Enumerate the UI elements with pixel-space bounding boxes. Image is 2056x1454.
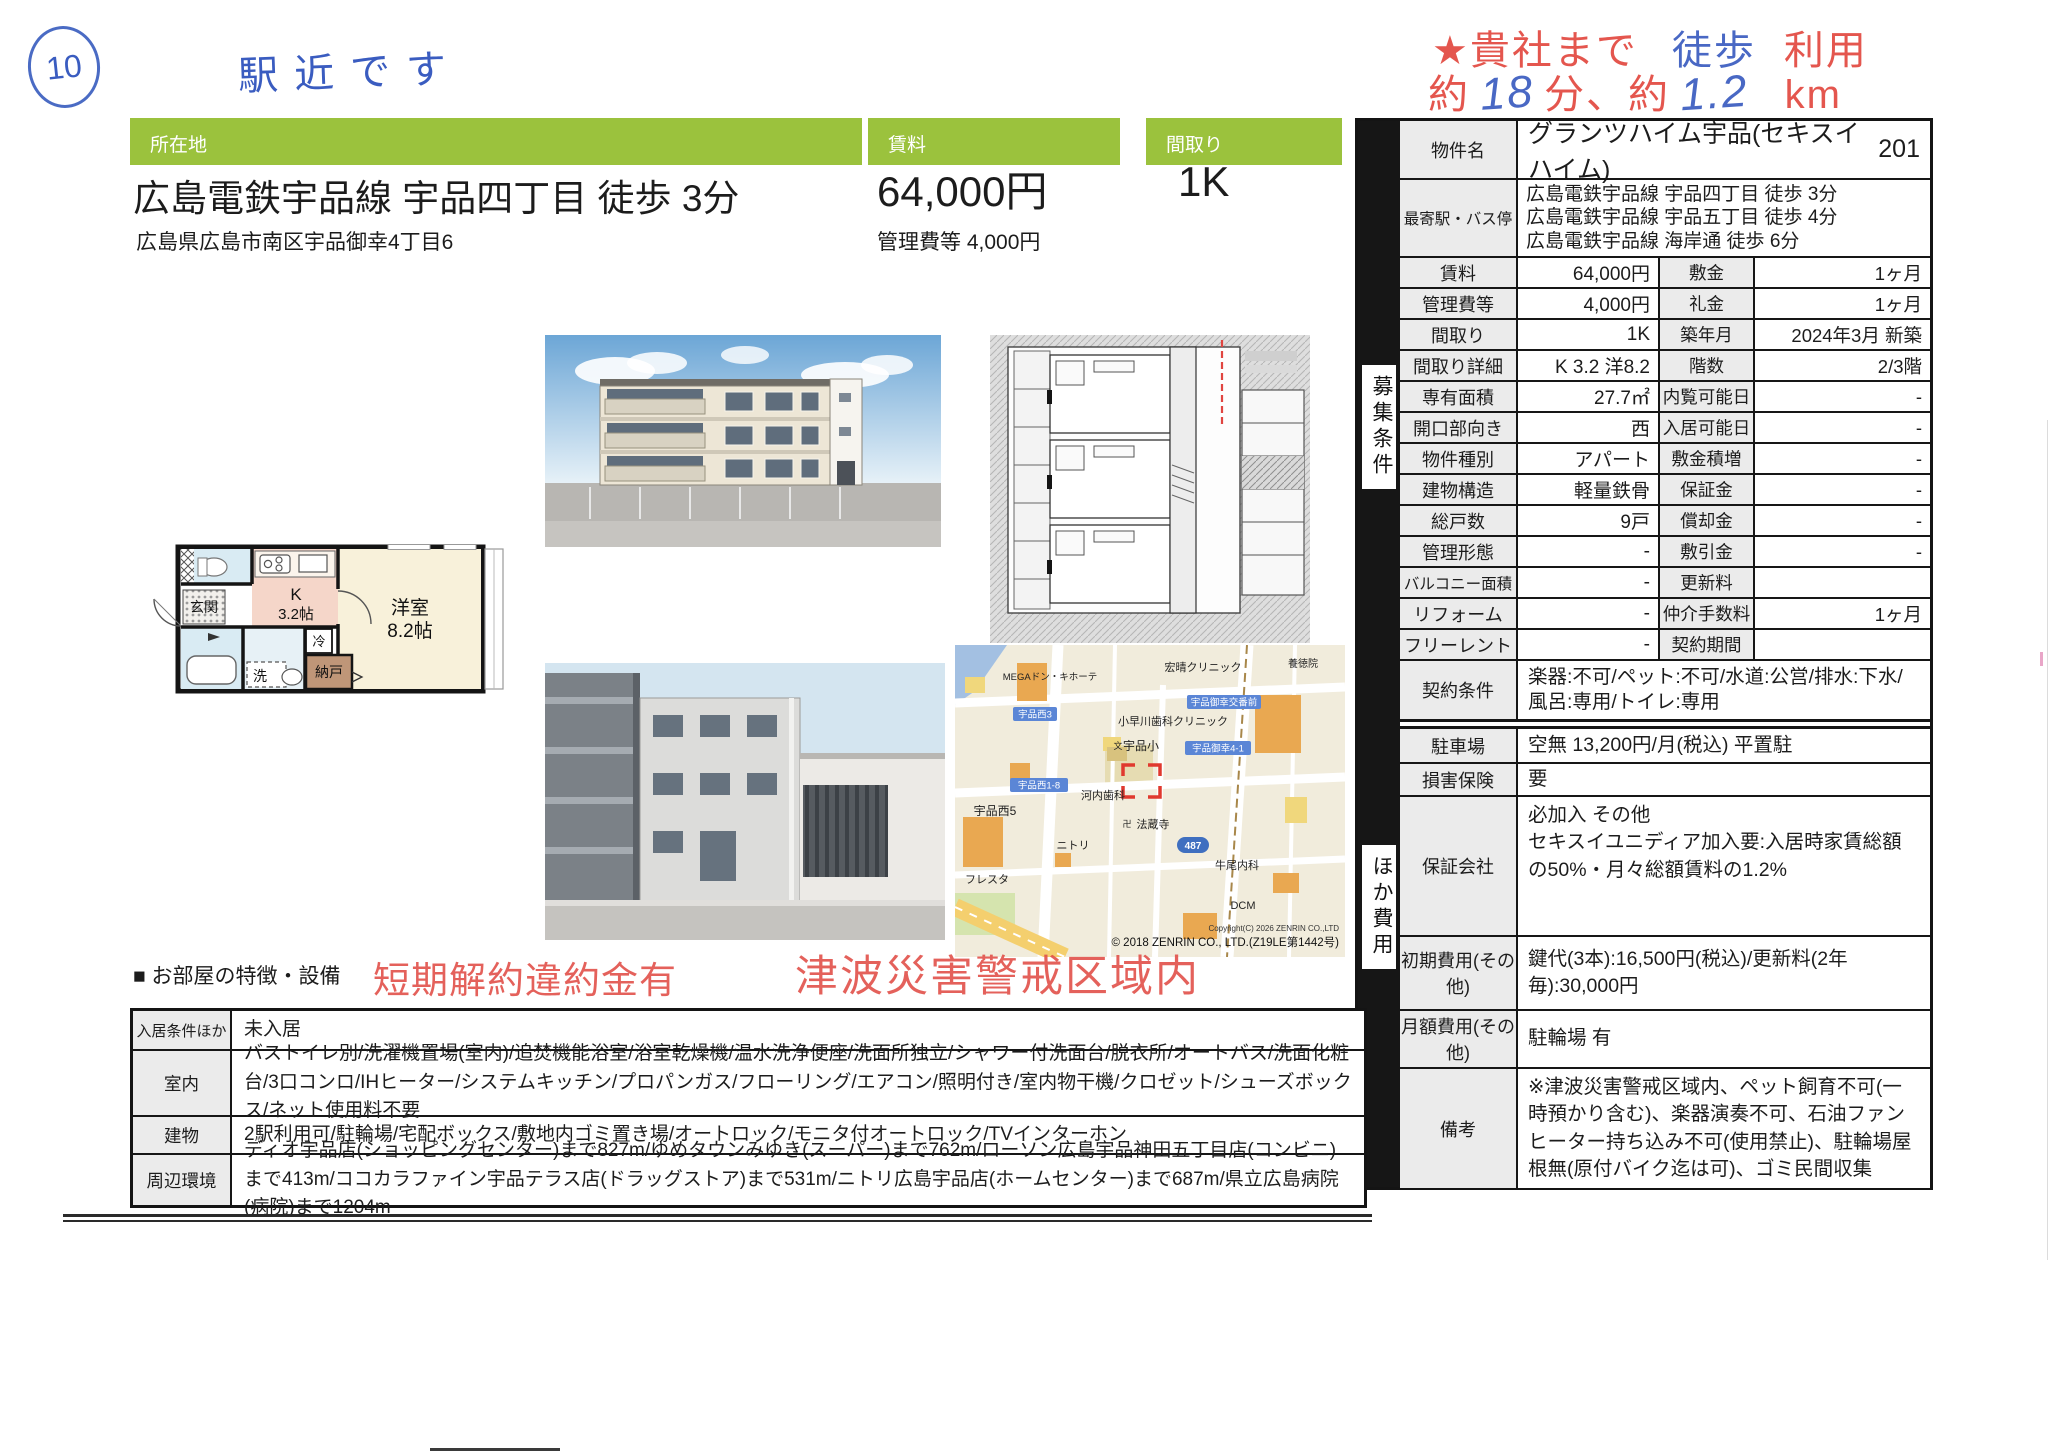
table-row: リフォーム - 仲介手数料 1ヶ月: [1400, 597, 1930, 628]
spec-value: 2/3階: [1753, 351, 1930, 380]
fee-label: 初期費用(その他): [1400, 937, 1516, 1009]
property-name-cell: グランツハイム宇品(セキスイハイム) 201: [1516, 121, 1930, 178]
table-row: 管理形態 - 敷引金 -: [1400, 535, 1930, 566]
building-exterior-photo: [545, 335, 941, 547]
spec-label: 間取り詳細: [1400, 351, 1516, 380]
fee-value: ※津波災害警戒区域内、ペット飼育不可(一時預かり含む)、楽器演奏不可、石油ファン…: [1516, 1069, 1930, 1188]
feature-label: 周辺環境: [133, 1155, 230, 1205]
spec-value: 9戸: [1516, 506, 1658, 535]
spec-value: -: [1753, 506, 1930, 535]
handwritten-note: 駅近です: [237, 36, 463, 102]
fee-label: 備考: [1400, 1069, 1516, 1188]
property-address: 広島県広島市南区宇品御幸4丁目6: [136, 226, 453, 256]
spec-value: K 3.2 洋8.2: [1516, 351, 1658, 380]
floorplan-fridge-label: 冷: [312, 634, 325, 649]
fee-value: 必加入 その他 セキスイユニディア加入要:入居時家賃総額の50%・月々総額賃料の…: [1516, 797, 1930, 935]
spec-label: 礼金: [1658, 289, 1753, 318]
circle-number-text: 10: [44, 47, 83, 88]
management-fee: 管理費等 4,000円: [877, 226, 1040, 256]
layout-type: 1K: [1178, 158, 1229, 206]
spec-value: -: [1753, 475, 1930, 504]
features-section-title: ■ お部屋の特徴・設備: [133, 960, 341, 990]
table-row-notes: 備考 ※津波災害警戒区域内、ペット飼育不可(一時預かり含む)、楽器演奏不可、石油…: [1400, 1067, 1930, 1188]
table-row: 開口部向き 西 入居可能日 -: [1400, 411, 1930, 442]
map-copyright-small: Copyright(C) 2026 ZENRIN CO.,LTD: [1208, 924, 1339, 933]
table-row-parking: 駐車場 空無 13,200円/月(税込) 平置駐: [1400, 729, 1930, 762]
spec-label: 管理形態: [1400, 537, 1516, 566]
map-poi: 河内歯科: [1081, 788, 1125, 802]
spec-label: 総戸数: [1400, 506, 1516, 535]
table-row-guarantee: 保証会社 必加入 その他 セキスイユニディア加入要:入居時家賃総額の50%・月々…: [1400, 795, 1930, 935]
fee-label: 損害保険: [1400, 764, 1516, 795]
agent-distance-stamp-line2: 約18分、約1.2km: [1428, 62, 1842, 120]
spec-value: 1ヶ月: [1753, 289, 1930, 318]
spec-value: 4,000円: [1516, 289, 1658, 318]
table-row: 間取り 1K 築年月 2024年3月 新築: [1400, 318, 1930, 349]
fee-label: 保証会社: [1400, 797, 1516, 935]
map-poi: 宏晴クリニック: [1165, 660, 1242, 674]
spec-value: -: [1516, 630, 1658, 659]
station-access-title: 広島電鉄宇品線 宇品四丁目 徒歩 3分: [133, 168, 739, 222]
contract-conditions: 楽器:不可/ペット:不可/水道:公営/排水:下水/風呂:専用/トイレ:専用: [1516, 661, 1930, 719]
spec-value: 軽量鉄骨: [1516, 475, 1658, 504]
fee-label: 駐車場: [1400, 729, 1516, 762]
map-pill: 宇品西3: [1018, 709, 1052, 721]
floorplan-drawing: 玄関 K 3.2帖 洋室 8.2帖 冷 洗 納戸: [148, 534, 540, 752]
spec-label: 階数: [1658, 351, 1753, 380]
spec-value: -: [1516, 537, 1658, 566]
spec-value: -: [1753, 413, 1930, 442]
spec-label: 物件種別: [1400, 444, 1516, 473]
map-poi: 牛尾内科: [1215, 858, 1259, 872]
building-entrance-photo: [545, 663, 945, 940]
fee-value: 要: [1516, 764, 1930, 795]
spec-label: 入居可能日: [1658, 413, 1753, 442]
spec-value: 1ヶ月: [1753, 599, 1930, 628]
floorplan-room-label: 洋室: [391, 597, 429, 619]
floorplan-svg: 玄関 K 3.2帖 洋室 8.2帖 冷 洗 納戸: [148, 534, 540, 752]
map-poi: 養徳院: [1288, 657, 1318, 670]
spec-value: [1753, 630, 1930, 659]
spec-label: バルコニー面積: [1400, 568, 1516, 597]
floorplan-genkan-label: 玄関: [190, 599, 218, 615]
station-list: 広島電鉄宇品線 宇品四丁目 徒歩 3分 広島電鉄宇品線 宇品五丁目 徒歩 4分 …: [1516, 180, 1930, 256]
map-poi: 小早川歯科クリニック: [1118, 714, 1228, 728]
spec-label: 敷金積増: [1658, 444, 1753, 473]
map-poi: 宇品西5: [974, 804, 1017, 818]
section-divider: [1400, 719, 1930, 729]
floorplan-kitchen-size: 3.2帖: [278, 606, 314, 623]
spec-value: -: [1516, 599, 1658, 628]
stamp-text: 約: [1428, 73, 1470, 117]
floorplan-kitchen-label: K: [290, 585, 302, 604]
spec-value: -: [1753, 382, 1930, 411]
entrance-photo-svg: [545, 663, 945, 940]
spec-label: フリーレント: [1400, 630, 1516, 659]
room-features-table: 入居条件ほか 未入居 室内 バストイレ別/洗濯機置場(室内)/追焚機能浴室/浴室…: [130, 1008, 1367, 1208]
table-row-initial-costs: 初期費用(その他) 鍵代(3本):16,500円(税込)/更新料(2年毎):30…: [1400, 935, 1930, 1009]
fee-value: 鍵代(3本):16,500円(税込)/更新料(2年毎):30,000円: [1516, 937, 1930, 1009]
feature-label: 室内: [133, 1051, 230, 1115]
spec-value: [1753, 568, 1930, 597]
fee-label: 月額費用(その他): [1400, 1011, 1516, 1067]
spec-value: -: [1753, 537, 1930, 566]
spec-label: 償却金: [1658, 506, 1753, 535]
floorplan-storage-label: 納戸: [315, 664, 343, 680]
spec-label: 物件名: [1400, 121, 1516, 178]
spec-label: 更新料: [1658, 568, 1753, 597]
spec-value: 64,000円: [1516, 258, 1658, 287]
spec-label: 賃料: [1400, 258, 1516, 287]
spec-label: 契約条件: [1400, 661, 1516, 719]
map-poi: MEGAドン・キホーテ: [1003, 672, 1097, 683]
table-row: 賃料 64,000円 敷金 1ヶ月: [1400, 256, 1930, 287]
table-row-insurance: 損害保険 要: [1400, 762, 1930, 795]
property-spec-table: 募集条件 ほか費用 物件名 グランツハイム宇品(セキスイハイム) 201 最寄駅…: [1355, 118, 1933, 1190]
map-pill: 宇品西1-8: [1018, 780, 1060, 792]
property-flyer-sheet: 10 駅近です ★貴社まで徒歩利用 約18分、約1.2km 所在地 賃料 間取り…: [0, 0, 2056, 1454]
spec-label: 敷金: [1658, 258, 1753, 287]
table-row: 物件種別 アパート 敷金積増 -: [1400, 442, 1930, 473]
map-poi: 宇品小: [1123, 739, 1159, 753]
rent-amount: 64,000円: [877, 158, 1047, 219]
spec-value: 2024年3月 新築: [1753, 320, 1930, 349]
spec-label: 専有面積: [1400, 382, 1516, 411]
property-name: グランツハイム宇品(セキスイハイム): [1528, 114, 1878, 186]
table-row-monthly-costs: 月額費用(その他) 駐輪場 有: [1400, 1009, 1930, 1067]
bottom-double-rule: [63, 1214, 1372, 1222]
map-pill: 宇品御幸4-1: [1192, 743, 1244, 755]
feature-label: 建物: [133, 1117, 230, 1153]
school-symbol-icon: 文: [1113, 740, 1122, 751]
spec-label: 間取り: [1400, 320, 1516, 349]
table-row: 間取り詳細 K 3.2 洋8.2 階数 2/3階: [1400, 349, 1930, 380]
stamp-text: 分、約: [1544, 73, 1670, 117]
station-line: 広島電鉄宇品線 宇品五丁目 徒歩 4分: [1526, 206, 1930, 229]
table-row: 建物構造 軽量鉄骨 保証金 -: [1400, 473, 1930, 504]
station-line: 広島電鉄宇品線 宇品四丁目 徒歩 3分: [1526, 183, 1930, 206]
spec-value: 西: [1516, 413, 1658, 442]
map-poi: フレスタ: [965, 873, 1009, 886]
map-poi: 法蔵寺: [1137, 817, 1170, 831]
table-row-interior: 室内 バストイレ別/洗濯機置場(室内)/追焚機能浴室/浴室乾燥機/温水洗浄便座/…: [133, 1049, 1364, 1115]
rail-label-recruit-conditions: 募集条件: [1362, 365, 1396, 489]
spec-value: 1K: [1516, 320, 1658, 349]
table-row: 専有面積 27.7㎡ 内覧可能日 -: [1400, 380, 1930, 411]
table-row: フリーレント - 契約期間: [1400, 628, 1930, 659]
scan-artifact: [2040, 652, 2043, 666]
table-row-contract: 契約条件 楽器:不可/ペット:不可/水道:公営/排水:下水/風呂:専用/トイレ:…: [1400, 659, 1930, 719]
spec-label: 内覧可能日: [1658, 382, 1753, 411]
spec-label: 仲介手数料: [1658, 599, 1753, 628]
spec-label: 建物構造: [1400, 475, 1516, 504]
rail-label-other-fees: ほか費用: [1362, 845, 1396, 969]
scan-artifact: [430, 1448, 560, 1451]
spec-value: 27.7㎡: [1516, 382, 1658, 411]
stamp-text: km: [1785, 73, 1842, 117]
temple-symbol-icon: 卍: [1122, 819, 1131, 829]
spec-value: -: [1516, 568, 1658, 597]
table-row-stations: 最寄駅・バス停 広島電鉄宇品線 宇品四丁目 徒歩 3分 広島電鉄宇品線 宇品五丁…: [1400, 178, 1930, 256]
map-poi: DCM: [1230, 900, 1255, 912]
short-term-penalty-stamp: 短期解約違約金有: [373, 950, 677, 1004]
fee-value: 空無 13,200円/月(税込) 平置駐: [1516, 729, 1930, 762]
layout-header-bar: 間取り: [1146, 118, 1342, 165]
map-pill: 宇品御幸交番前: [1191, 697, 1258, 709]
route-shield: 487: [1185, 841, 1202, 852]
map-poi: ニトリ: [1057, 840, 1090, 852]
floorplan-room-size: 8.2帖: [387, 620, 432, 642]
floorplan-washer-label: 洗: [253, 668, 267, 684]
scan-artifact: [2047, 420, 2048, 1260]
spec-value: 1ヶ月: [1753, 258, 1930, 287]
station-line: 広島電鉄宇品線 海岸通 徒歩 6分: [1526, 230, 1930, 253]
spec-label: 築年月: [1658, 320, 1753, 349]
feature-value: ディオ宇品店(ショッピングセンター)まで827m/ゆめタウンみゆき(スーパー)ま…: [230, 1155, 1364, 1205]
area-map: 宇品西3 宇品御幸交番前 宇品御幸4-1 宇品西1-8 MEGAドン・キホーテ …: [955, 645, 1345, 957]
handwritten-minutes: 18: [1478, 65, 1536, 121]
feature-label: 入居条件ほか: [133, 1011, 230, 1049]
tsunami-zone-stamp: 津波災害警戒区域内: [795, 942, 1200, 1004]
building-photo-svg: [545, 335, 941, 547]
spec-value: -: [1753, 444, 1930, 473]
fee-value: 駐輪場 有: [1516, 1011, 1930, 1067]
table-row-property-name: 物件名 グランツハイム宇品(セキスイハイム) 201: [1400, 121, 1930, 178]
feature-value: バストイレ別/洗濯機置場(室内)/追焚機能浴室/浴室乾燥機/温水洗浄便座/洗面所…: [230, 1051, 1364, 1115]
room-number: 201: [1878, 135, 1920, 164]
location-header-bar: 所在地: [130, 118, 862, 165]
spec-label: 管理費等: [1400, 289, 1516, 318]
table-row: 管理費等 4,000円 礼金 1ヶ月: [1400, 287, 1930, 318]
table-row: 総戸数 9戸 償却金 -: [1400, 504, 1930, 535]
table-row-surroundings: 周辺環境 ディオ宇品店(ショッピングセンター)まで827m/ゆめタウンみゆき(ス…: [133, 1153, 1364, 1205]
spec-label: 保証金: [1658, 475, 1753, 504]
spec-label: 開口部向き: [1400, 413, 1516, 442]
spec-label: 契約期間: [1658, 630, 1753, 659]
spec-label: 最寄駅・バス停: [1400, 180, 1516, 256]
spec-label: リフォーム: [1400, 599, 1516, 628]
map-svg: 宇品西3 宇品御幸交番前 宇品御幸4-1 宇品西1-8 MEGAドン・キホーテ …: [955, 645, 1345, 957]
site-plan-svg: [990, 335, 1310, 643]
handwritten-circle-number: 10: [24, 22, 104, 111]
table-row: バルコニー面積 - 更新料: [1400, 566, 1930, 597]
site-plan-drawing: [990, 335, 1310, 643]
spec-value: アパート: [1516, 444, 1658, 473]
spec-label: 敷引金: [1658, 537, 1753, 566]
